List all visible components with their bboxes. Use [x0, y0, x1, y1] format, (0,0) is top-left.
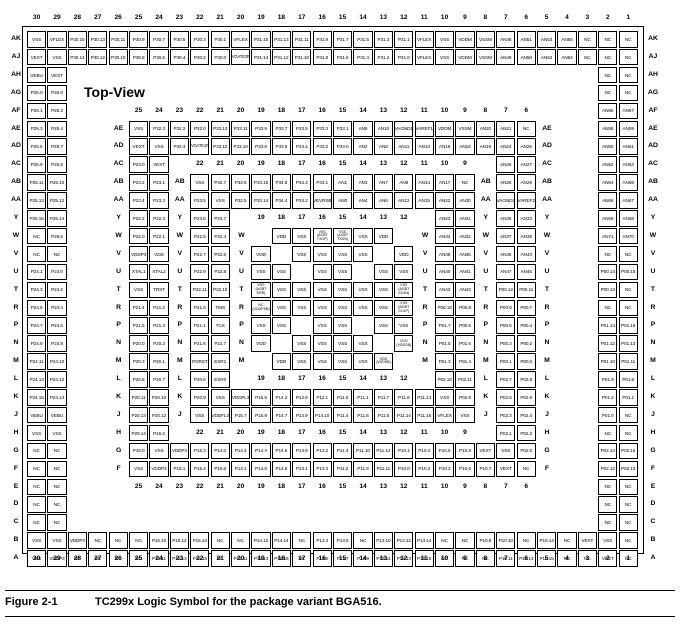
pin-cell: P13.14 — [415, 532, 434, 549]
pin-cell: VSS — [333, 246, 352, 263]
row-label: N — [171, 339, 189, 349]
pin-cell: P32.3 — [149, 121, 168, 138]
col-header-number: 20 — [230, 160, 250, 169]
pin-cell: P02.8 — [517, 371, 536, 388]
pin-cell: P21.1 — [190, 317, 209, 334]
col-header-number: 7 — [496, 483, 516, 492]
pin-cell: VSS — [374, 317, 393, 334]
col-header-number: 18 — [271, 429, 291, 438]
col-header-number: 8 — [475, 14, 495, 23]
pin-cell: VSS — [353, 300, 372, 317]
col-header-number: 22 — [190, 107, 210, 116]
row-label: AA — [477, 196, 495, 206]
pin-cell: P01.10 — [598, 353, 617, 370]
pin-cell: VSS (AGBT TXDP) — [313, 228, 332, 245]
pin-cell: NC — [231, 532, 250, 549]
pin-cell: VDD (VDDSB) — [374, 353, 393, 370]
pin-cell: P11.14 — [394, 407, 413, 424]
pin-cell: P01.9 — [598, 371, 617, 388]
row-label: AA — [7, 196, 25, 206]
pin-cell: P33.8 — [251, 138, 270, 155]
pin-cell: P32.6 — [231, 174, 250, 191]
col-header-number: 12 — [394, 214, 414, 223]
col-header-number: 22 — [190, 160, 210, 169]
pin-cell: AN27 — [517, 156, 536, 173]
pin-cell: VSS — [333, 335, 352, 352]
pin-cell: NC — [109, 532, 128, 549]
pin-cell: P00.7 — [517, 300, 536, 317]
col-header-number: 23 — [169, 483, 189, 492]
pin-cell: AN7 — [374, 174, 393, 191]
col-header-number: 18 — [271, 483, 291, 492]
row-label: T — [644, 286, 662, 296]
pin-cell: P21.4 — [129, 300, 148, 317]
row-label: AA — [171, 196, 189, 206]
row-label: L — [538, 375, 556, 385]
row-label: B — [7, 536, 25, 546]
pin-cell: ESR1 — [211, 353, 230, 370]
pin-cell: VSS — [292, 335, 311, 352]
pin-cell: P14.5 — [251, 461, 270, 478]
pin-cell: P30.4 — [170, 49, 189, 66]
col-header-number: 1 — [618, 14, 638, 23]
pin-cell: AN46 — [517, 264, 536, 281]
pin-cell: AN38 — [435, 246, 454, 263]
pin-cell: VEBU — [27, 67, 46, 84]
pin-cell: P02.5 — [496, 389, 515, 406]
row-label: AD — [538, 142, 556, 152]
row-label: U — [171, 268, 189, 278]
pin-cell: AN25 — [517, 138, 536, 155]
pin-cell: VSS — [211, 192, 230, 209]
pin-cell: P14.4 — [231, 443, 250, 460]
pin-cell: VSS — [374, 282, 393, 299]
pin-cell: P33.14 — [251, 192, 270, 209]
pin-cell: AN33 — [517, 210, 536, 227]
pin-cell: VEVRSB — [313, 192, 332, 209]
col-header-number: 21 — [210, 555, 230, 564]
col-header-number: 22 — [190, 555, 210, 564]
col-header-number: 17 — [292, 14, 312, 23]
row-label: K — [538, 393, 556, 403]
col-header-number: 12 — [394, 160, 414, 169]
col-header-number: 18 — [271, 160, 291, 169]
col-header-number: 11 — [414, 483, 434, 492]
pin-cell: P11.11 — [374, 461, 393, 478]
pin-cell: P33.11 — [231, 121, 250, 138]
pin-cell: VSS — [27, 425, 46, 442]
pin-cell: AN57 — [619, 103, 638, 120]
pin-cell: P14.14 — [272, 532, 291, 549]
row-label: H — [644, 429, 662, 439]
pin-cell: P30.11 — [109, 31, 128, 48]
pin-cell: AN43 — [455, 282, 474, 299]
col-header-number: 20 — [230, 429, 250, 438]
col-header-number: 10 — [434, 160, 454, 169]
pin-cell: VSS (AGBT CLKP) — [394, 300, 413, 317]
pin-cell: VDDP3 — [149, 461, 168, 478]
row-label: T — [7, 286, 25, 296]
pin-cell: AN39 — [517, 228, 536, 245]
pin-cell: P24.11 — [27, 353, 46, 370]
pin-cell: VDDP3 — [129, 246, 148, 263]
pin-cell: VSS — [374, 300, 393, 317]
row-label: AD — [7, 142, 25, 152]
col-header-number: 15 — [332, 555, 352, 564]
col-header-number: 22 — [190, 14, 210, 23]
pin-cell: P22.10 — [211, 282, 230, 299]
pin-cell: VSS — [292, 246, 311, 263]
pin-cell: AN15 — [415, 192, 434, 209]
pin-cell: VSS — [129, 282, 148, 299]
col-header-number: 19 — [251, 375, 271, 384]
pin-cell: NC — [619, 425, 638, 442]
row-label: B — [644, 536, 662, 546]
pin-cell: VSSM — [476, 49, 495, 66]
pin-cell: AN9 — [394, 174, 413, 191]
col-header-number: 9 — [455, 14, 475, 23]
pin-cell: P15.3 — [190, 443, 209, 460]
row-label: N — [477, 339, 495, 349]
pin-cell: P15.4 — [190, 461, 209, 478]
col-header-number: 19 — [251, 429, 271, 438]
pin-cell: VSS — [292, 282, 311, 299]
pin-cell: P31.9 — [313, 31, 332, 48]
pin-cell: VEXT — [27, 49, 46, 66]
pin-cell: AN19 — [476, 138, 495, 155]
pin-cell: VSS — [27, 31, 46, 48]
pin-cell: NC — [619, 479, 638, 496]
pin-cell: P31.7 — [333, 31, 352, 48]
pin-cell: P11.10 — [353, 443, 372, 460]
row-label: V — [538, 250, 556, 260]
pin-cell: AN12 — [394, 192, 413, 209]
pin-cell: AN3 — [353, 174, 372, 191]
col-header-number: 25 — [128, 14, 148, 23]
pin-cell: P14.8 — [272, 461, 291, 478]
pin-cell: VSS — [313, 353, 332, 370]
col-header-number: 24 — [149, 107, 169, 116]
pin-cell: P22.3 — [149, 210, 168, 227]
pin-cell: VSS (AGBT CLKN) — [394, 282, 413, 299]
col-header-number: 13 — [373, 429, 393, 438]
row-label: R — [644, 304, 662, 314]
pin-cell: AN47 — [496, 264, 515, 281]
pin-cell: VSS — [353, 282, 372, 299]
pin-cell: NC — [435, 532, 454, 549]
row-label: AC — [644, 160, 662, 170]
col-header-number: 17 — [292, 214, 312, 223]
pin-cell: P01.2 — [598, 389, 617, 406]
row-label: U — [644, 268, 662, 278]
col-header-number: 11 — [414, 429, 434, 438]
pin-cell: P10.4 — [415, 443, 434, 460]
pin-cell: P21.2 — [149, 300, 168, 317]
pin-cell: VSS — [313, 246, 332, 263]
pin-cell: VEXT — [129, 138, 148, 155]
pin-cell: P31.13 — [272, 31, 291, 48]
col-header-number: 20 — [230, 483, 250, 492]
pin-cell: AN34 — [435, 228, 454, 245]
col-header-number: 15 — [332, 107, 352, 116]
row-label: AE — [110, 125, 128, 135]
pin-cell: P34.4 — [272, 192, 291, 209]
pin-cell: AN37 — [496, 228, 515, 245]
pin-cell: P20.14 — [129, 425, 148, 442]
pin-cell: P33.4 — [292, 138, 311, 155]
pin-cell: P30.14 — [68, 49, 87, 66]
row-label: G — [538, 447, 556, 457]
pin-cell: P15.6 — [211, 461, 230, 478]
pin-cell: P01.3 — [435, 353, 454, 370]
col-header-number: 19 — [251, 555, 271, 564]
row-label: K — [7, 393, 25, 403]
row-label: N — [644, 339, 662, 349]
pin-cell: VDD — [251, 246, 270, 263]
pin-cell: VSS — [333, 353, 352, 370]
pin-cell: VEXT — [476, 443, 495, 460]
pin-cell: P11.1 — [353, 389, 372, 406]
row-label: W — [416, 232, 434, 242]
row-label: W — [171, 232, 189, 242]
row-label: N — [7, 339, 25, 349]
pin-cell: AN6 — [374, 192, 393, 209]
row-label: J — [110, 411, 128, 421]
pin-cell: NC — [598, 496, 617, 513]
pin-cell: P24.10 — [47, 353, 66, 370]
pin-cell: P30.6 — [149, 49, 168, 66]
pin-cell: P24.6 — [47, 317, 66, 334]
row-label: V — [233, 250, 251, 260]
pin-cell: AN62 — [598, 156, 617, 173]
row-label: G — [7, 447, 25, 457]
row-label: AF — [7, 107, 25, 117]
pin-cell: VDDFL3 — [231, 389, 250, 406]
row-label: AA — [644, 196, 662, 206]
col-header-number: 17 — [292, 160, 312, 169]
col-header-number: 16 — [312, 107, 332, 116]
pin-cell: P30.1 — [211, 31, 230, 48]
pin-cell: AN61 — [619, 138, 638, 155]
row-label: AD — [110, 142, 128, 152]
pin-cell: P34.2 — [292, 192, 311, 209]
pin-cell: AN28 — [496, 174, 515, 191]
pin-cell: AN40 — [435, 264, 454, 281]
pin-cell: P00.14 — [598, 264, 617, 281]
pin-cell: P14.7 — [272, 407, 291, 424]
pin-cell: P01.5 — [435, 335, 454, 352]
pin-cell: VSS — [455, 407, 474, 424]
row-label: W — [644, 232, 662, 242]
pin-cell: VSS — [313, 317, 332, 334]
col-header-number: 6 — [516, 107, 536, 116]
pin-cell: AN13 — [415, 138, 434, 155]
row-label: L — [644, 375, 662, 385]
pin-cell: VSS — [394, 317, 413, 334]
pin-cell: XTAL1 — [129, 264, 148, 281]
pin-cell: VSS — [27, 532, 46, 549]
pin-cell: VDD — [149, 246, 168, 263]
pin-cell: VSS (AGBT TXDN) — [333, 228, 352, 245]
pin-cell: NC — [47, 461, 66, 478]
pin-cell: P22.9 — [190, 264, 209, 281]
pin-cell: AN21 — [496, 121, 515, 138]
pin-cell: P15.0 — [129, 443, 148, 460]
pin-cell: P32.0 — [190, 121, 209, 138]
pin-cell: P30.12 — [88, 49, 107, 66]
pin-cell: AN44 — [517, 246, 536, 263]
pin-cell: P10.3 — [415, 461, 434, 478]
row-label: J — [7, 411, 25, 421]
pin-cell: P21.5 — [129, 317, 148, 334]
pin-cell: VSS — [394, 264, 413, 281]
pin-cell: AN10 — [374, 121, 393, 138]
pin-cell: VDDM — [455, 49, 474, 66]
col-header-number: 2 — [598, 555, 618, 564]
pin-cell: P15.8 — [251, 407, 270, 424]
pin-cell: P01.6 — [455, 335, 474, 352]
col-header-number: 9 — [455, 160, 475, 169]
pin-cell: VSS — [251, 264, 270, 281]
col-header-number: 21 — [210, 483, 230, 492]
row-label: N — [233, 339, 251, 349]
pin-cell: NC — [619, 31, 638, 48]
pin-cell: AN51 — [517, 31, 536, 48]
pin-cell: VSS — [129, 461, 148, 478]
row-label: U — [110, 268, 128, 278]
row-label: F — [7, 465, 25, 475]
pin-cell: P25.15 — [27, 210, 46, 227]
pin-cell: NC — [598, 300, 617, 317]
col-header-number: 7 — [496, 555, 516, 564]
pin-cell: AN2 — [353, 138, 372, 155]
pin-cell: P02.1 — [496, 425, 515, 442]
pin-cell: AN52 — [537, 49, 556, 66]
pin-cell: P01.0 — [598, 407, 617, 424]
col-header-number: 15 — [332, 483, 352, 492]
pin-cell: P22.1 — [149, 228, 168, 245]
col-header-number: 3 — [577, 555, 597, 564]
col-header-number: 18 — [271, 107, 291, 116]
row-label: M — [416, 357, 434, 367]
pin-cell: VSS — [313, 282, 332, 299]
pin-cell: NC — [353, 532, 372, 549]
pin-cell: AN48 — [496, 31, 515, 48]
pin-cell: P10.5 — [435, 443, 454, 460]
pin-cell: P30.15 — [68, 31, 87, 48]
pin-cell: P10.0 — [394, 461, 413, 478]
pin-cell: VSS (AGBT ERR) — [251, 282, 270, 299]
row-label: F — [110, 465, 128, 475]
row-label: R — [233, 304, 251, 314]
col-header-number: 17 — [292, 483, 312, 492]
pin-cell: AN22 — [435, 192, 454, 209]
pin-cell: NC — [598, 31, 617, 48]
pin-cell: AN29 — [517, 174, 536, 191]
pin-cell: P13.2 — [313, 443, 332, 460]
pin-cell: VSS — [292, 353, 311, 370]
col-header-number: 15 — [332, 429, 352, 438]
col-header-number: 15 — [332, 375, 352, 384]
row-label: R — [171, 304, 189, 314]
pin-cell: P00.3 — [496, 335, 515, 352]
pin-cell: NC — [619, 85, 638, 102]
pin-cell: P33.1 — [333, 121, 352, 138]
pin-cell: NC — [27, 443, 46, 460]
pin-cell: P02.13 — [619, 461, 638, 478]
pin-cell: XTAL2 — [149, 264, 168, 281]
col-header-number: 9 — [455, 107, 475, 116]
pin-cell: NC — [27, 461, 46, 478]
pin-cell: P02.0 — [517, 443, 536, 460]
pin-cell: P33.15 — [251, 174, 270, 191]
row-label: R — [416, 304, 434, 314]
col-header-number: 12 — [394, 555, 414, 564]
col-header-number: 20 — [230, 555, 250, 564]
col-header-number: 14 — [353, 555, 373, 564]
pin-cell: P34.3 — [292, 174, 311, 191]
row-label: Y — [110, 214, 128, 224]
pin-cell: VDD (VDDSB) — [394, 335, 413, 352]
pin-cell: VAREF2 — [517, 192, 536, 209]
row-label: A — [644, 554, 662, 564]
pin-cell: VSS — [496, 443, 515, 460]
row-label: W — [538, 232, 556, 242]
pin-cell: P23.3 — [149, 192, 168, 209]
pin-cell: AN4 — [353, 192, 372, 209]
col-header-number: 28 — [67, 555, 87, 564]
col-header-number: 20 — [230, 107, 250, 116]
col-header-number: 7 — [496, 14, 516, 23]
pin-cell: P11.3 — [333, 443, 352, 460]
pin-cell: P23.6 — [190, 210, 209, 227]
row-label: R — [7, 304, 25, 314]
pin-cell: P14.6 — [272, 443, 291, 460]
pin-cell: NC — [47, 246, 66, 263]
pin-cell: NC — [557, 532, 576, 549]
pin-cell: VSS — [190, 174, 209, 191]
row-label: AB — [538, 178, 556, 188]
pin-cell: VSS — [333, 264, 352, 281]
pin-cell: P10.14 — [537, 532, 556, 549]
pin-cell: NC — [619, 246, 638, 263]
pin-cell: P02.4 — [517, 407, 536, 424]
pin-cell: P31.3 — [374, 31, 393, 48]
pin-cell: P24.13 — [27, 371, 46, 388]
pin-cell: P01.12 — [598, 335, 617, 352]
pin-cell: NC — [292, 532, 311, 549]
col-header-number: 13 — [373, 375, 393, 384]
col-header-number: 10 — [434, 555, 454, 564]
pin-cell: P14.2 — [272, 389, 291, 406]
row-label: W — [110, 232, 128, 242]
row-label: M — [7, 357, 25, 367]
figure-caption: Figure 2-1 TC299x Logic Symbol for the p… — [5, 596, 675, 608]
pin-cell: NC — [598, 246, 617, 263]
pin-cell: NC — [619, 496, 638, 513]
pin-cell: P11.6 — [353, 407, 372, 424]
pin-cell: P24.2 — [47, 282, 66, 299]
row-label: Y — [7, 214, 25, 224]
pin-cell: NC — [27, 496, 46, 513]
pin-cell: VSS — [435, 31, 454, 48]
pin-cell: NC — [27, 479, 46, 496]
pin-cell: VDD — [394, 246, 413, 263]
row-label: AB — [477, 178, 495, 188]
pin-cell: AN66 — [598, 192, 617, 209]
pin-cell: NC — [619, 67, 638, 84]
row-label: T — [233, 286, 251, 296]
